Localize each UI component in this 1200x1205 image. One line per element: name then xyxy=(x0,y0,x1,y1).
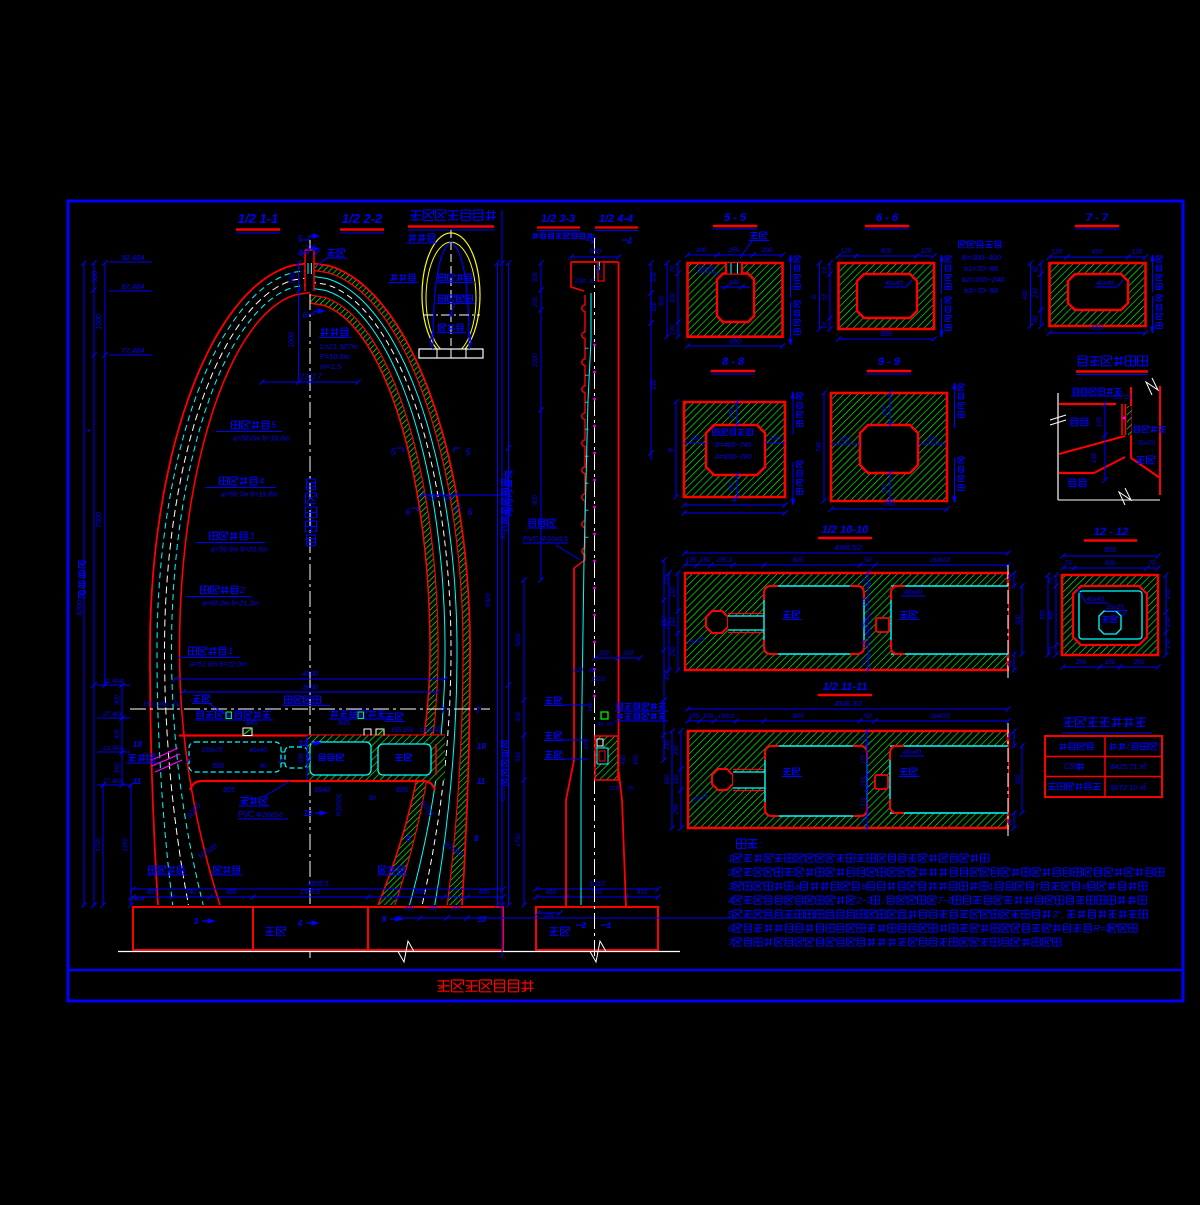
svg-text:100: 100 xyxy=(729,279,740,286)
svg-text:75: 75 xyxy=(1065,561,1072,567)
svg-text:175: 175 xyxy=(861,796,867,806)
svg-text:b3: b3 xyxy=(823,321,829,328)
svg-text:200: 200 xyxy=(883,483,889,495)
svg-text:b2: b2 xyxy=(823,293,829,300)
svg-text:PVC: PVC xyxy=(523,534,539,543)
svg-text:550: 550 xyxy=(634,754,640,765)
svg-text:a=60.3m b=21.2m: a=60.3m b=21.2m xyxy=(202,601,259,608)
svg-text:12 - 12: 12 - 12 xyxy=(1094,526,1128,538)
svg-text:400: 400 xyxy=(1023,289,1029,300)
svg-text:805: 805 xyxy=(223,787,235,794)
svg-text:500: 500 xyxy=(290,272,297,284)
svg-text:250: 250 xyxy=(671,586,677,598)
svg-text:150: 150 xyxy=(403,727,414,734)
svg-text:6: 6 xyxy=(405,507,410,517)
svg-text:175: 175 xyxy=(862,639,868,649)
svg-text:b3=70~80: b3=70~80 xyxy=(964,286,999,295)
svg-text:3600: 3600 xyxy=(302,685,318,692)
svg-text:10: 10 xyxy=(478,915,487,924)
svg-text:C50: C50 xyxy=(1064,762,1079,771)
svg-text:6100: 6100 xyxy=(504,517,511,532)
svg-text:4400: 4400 xyxy=(302,671,318,678)
svg-text:27.404: 27.404 xyxy=(102,711,123,718)
svg-text:150: 150 xyxy=(861,776,867,786)
svg-text:,: , xyxy=(881,895,884,905)
svg-text:150: 150 xyxy=(690,435,701,442)
svg-text:125: 125 xyxy=(609,786,619,792)
svg-text:77.404: 77.404 xyxy=(122,346,145,355)
svg-text:180: 180 xyxy=(588,701,594,711)
svg-text:7: 7 xyxy=(441,706,446,715)
svg-text:a=58.0m b=18.0m: a=58.0m b=18.0m xyxy=(233,436,290,443)
svg-text:10: 10 xyxy=(477,742,486,751)
svg-text:40x40: 40x40 xyxy=(885,280,903,287)
svg-text:200: 200 xyxy=(622,651,634,657)
svg-text:4346.3/2: 4346.3/2 xyxy=(834,701,861,708)
svg-text:9672.10 m: 9672.10 m xyxy=(1110,783,1145,792)
svg-text:250: 250 xyxy=(598,651,610,657)
svg-text:200: 200 xyxy=(403,906,415,912)
svg-text:4: 4 xyxy=(259,476,264,486)
svg-text:240: 240 xyxy=(157,701,169,708)
svg-text:250: 250 xyxy=(671,646,677,658)
svg-text:F=10.0m: F=10.0m xyxy=(320,352,350,361)
svg-text:3: 3 xyxy=(194,917,199,926)
svg-text:75: 75 xyxy=(1049,577,1055,584)
svg-text:2~3: 2~3 xyxy=(855,895,873,905)
svg-text:40x40: 40x40 xyxy=(249,747,267,754)
svg-text:A=650~790: A=650~790 xyxy=(714,454,751,461)
svg-text:130: 130 xyxy=(652,379,658,390)
svg-text:300: 300 xyxy=(652,301,658,312)
svg-text:135: 135 xyxy=(686,557,697,564)
svg-text:200: 200 xyxy=(543,913,555,919)
svg-text:200: 200 xyxy=(926,436,938,443)
svg-text:25: 25 xyxy=(1124,395,1132,401)
svg-text:150: 150 xyxy=(671,616,677,627)
svg-text:11: 11 xyxy=(133,777,142,786)
svg-text:790: 790 xyxy=(883,501,895,508)
svg-text::: : xyxy=(1003,240,1005,249)
svg-text:b: b xyxy=(861,881,866,891)
svg-text:500: 500 xyxy=(1016,774,1022,785)
svg-text:550: 550 xyxy=(516,751,522,762)
svg-text:805: 805 xyxy=(793,557,804,564)
svg-text:400: 400 xyxy=(115,728,121,739)
svg-text:250: 250 xyxy=(1166,588,1172,600)
svg-text:300: 300 xyxy=(671,292,677,303)
svg-text:75: 75 xyxy=(1008,733,1014,740)
svg-text:4: 4 xyxy=(297,919,303,928)
svg-text:120: 120 xyxy=(1052,249,1063,256)
svg-text:740: 740 xyxy=(817,441,823,452)
svg-text:11: 11 xyxy=(477,777,486,786)
svg-text:Φ16x0.5: Φ16x0.5 xyxy=(541,536,568,543)
svg-text:1350: 1350 xyxy=(123,838,129,852)
svg-text:250: 250 xyxy=(1075,659,1087,666)
svg-text:B=300~400: B=300~400 xyxy=(962,253,1002,262)
svg-text:60: 60 xyxy=(1034,265,1040,272)
svg-text:410: 410 xyxy=(546,889,557,896)
svg-text:7 - 7: 7 - 7 xyxy=(1086,212,1109,224)
svg-text:650: 650 xyxy=(662,616,668,627)
svg-text:50: 50 xyxy=(864,557,872,564)
svg-text:155: 155 xyxy=(143,701,154,708)
svg-text:150: 150 xyxy=(1166,638,1172,649)
svg-text:B=400~740: B=400~740 xyxy=(715,442,751,449)
svg-text:1610: 1610 xyxy=(589,881,605,888)
svg-text:1505.5: 1505.5 xyxy=(300,889,320,896)
svg-text:435: 435 xyxy=(415,889,426,896)
svg-text:75: 75 xyxy=(627,786,634,792)
svg-text:125: 125 xyxy=(584,739,590,749)
svg-text:B: B xyxy=(812,295,818,299)
svg-text:R30000: R30000 xyxy=(336,793,343,816)
svg-text:b1: b1 xyxy=(823,267,829,274)
svg-text:7~8: 7~8 xyxy=(938,895,955,905)
svg-text:340: 340 xyxy=(428,906,439,912)
svg-text:120x50: 120x50 xyxy=(419,727,441,734)
svg-text:150: 150 xyxy=(862,619,868,629)
svg-text:1640/2: 1640/2 xyxy=(930,713,950,720)
svg-text:435: 435 xyxy=(479,889,490,896)
svg-text:75: 75 xyxy=(861,735,867,742)
svg-text:175: 175 xyxy=(862,596,868,606)
svg-text:6: 6 xyxy=(467,507,472,517)
svg-text:40x40: 40x40 xyxy=(1096,280,1114,287)
svg-text::: : xyxy=(759,839,762,851)
svg-text:120: 120 xyxy=(921,248,932,255)
svg-text:150: 150 xyxy=(703,713,714,720)
svg-text:1/2 4-4: 1/2 4-4 xyxy=(599,213,633,225)
svg-text:155: 155 xyxy=(689,713,700,720)
svg-text:a=59.5m b=20.0m: a=59.5m b=20.0m xyxy=(211,547,268,554)
svg-text:650: 650 xyxy=(1091,325,1103,332)
svg-text:): ) xyxy=(1157,742,1161,751)
svg-text:1: 1 xyxy=(228,646,233,656)
svg-text:845: 845 xyxy=(338,720,350,727)
svg-text:1750: 1750 xyxy=(96,838,102,852)
svg-text:410: 410 xyxy=(1092,249,1103,256)
svg-text:4390.5/2: 4390.5/2 xyxy=(834,545,861,552)
svg-text:7: 7 xyxy=(476,706,481,715)
svg-text:550: 550 xyxy=(299,752,305,763)
svg-text:120: 120 xyxy=(1132,249,1143,256)
svg-text:193.2: 193.2 xyxy=(718,713,735,720)
svg-text:8 - 8: 8 - 8 xyxy=(722,356,745,368)
svg-text:150: 150 xyxy=(700,557,711,564)
svg-text:31.404: 31.404 xyxy=(103,678,123,685)
svg-text:480: 480 xyxy=(307,752,313,763)
svg-text:100: 100 xyxy=(1097,416,1103,427)
svg-text:650: 650 xyxy=(729,339,741,346)
svg-text:50: 50 xyxy=(173,701,181,708)
svg-text:17.404: 17.404 xyxy=(103,778,123,785)
svg-text:3°,: 3°, xyxy=(1052,909,1063,919)
svg-text:435: 435 xyxy=(147,889,158,896)
svg-text:90: 90 xyxy=(597,722,604,728)
svg-text:50: 50 xyxy=(864,713,872,720)
svg-text:500: 500 xyxy=(533,271,539,282)
svg-text:1: 1 xyxy=(628,236,633,245)
svg-text:65: 65 xyxy=(607,722,614,728)
svg-text:5920: 5920 xyxy=(485,592,492,607)
svg-text:650: 650 xyxy=(665,774,671,785)
svg-text:1000: 1000 xyxy=(96,314,103,330)
svg-text:240: 240 xyxy=(1034,287,1040,299)
svg-text:75: 75 xyxy=(1008,819,1014,826)
svg-text:410: 410 xyxy=(637,889,648,896)
svg-text:92.404: 92.404 xyxy=(122,253,145,262)
svg-text:8: 8 xyxy=(406,834,411,843)
svg-text:4.404: 4.404 xyxy=(128,896,145,903)
svg-text:120: 120 xyxy=(442,496,453,502)
svg-text:500: 500 xyxy=(1105,560,1116,567)
svg-text:250: 250 xyxy=(728,247,740,254)
svg-text:500: 500 xyxy=(660,295,666,306)
svg-text:2: 2 xyxy=(1143,783,1147,789)
svg-text:155: 155 xyxy=(391,727,402,734)
svg-text:40x40: 40x40 xyxy=(697,265,715,272)
svg-text:1/2 3-3: 1/2 3-3 xyxy=(541,213,575,225)
svg-text:70x70: 70x70 xyxy=(1137,440,1155,447)
svg-text:30: 30 xyxy=(368,795,376,802)
svg-text:9 - 9: 9 - 9 xyxy=(878,356,901,368)
svg-text:430: 430 xyxy=(621,754,627,765)
svg-text:250: 250 xyxy=(674,803,680,815)
svg-text:550: 550 xyxy=(115,762,121,773)
svg-text:150: 150 xyxy=(1166,616,1172,627)
svg-text:1750: 1750 xyxy=(516,833,522,847)
svg-text:150x75: 150x75 xyxy=(201,747,223,754)
svg-text:410: 410 xyxy=(881,248,892,255)
svg-text:138: 138 xyxy=(1092,452,1098,463)
svg-text:4: 4 xyxy=(297,248,302,258)
svg-text:75: 75 xyxy=(861,817,867,824)
svg-text:21.904: 21.904 xyxy=(102,745,123,752)
svg-text:500: 500 xyxy=(92,271,99,283)
svg-text:1000: 1000 xyxy=(533,353,539,367)
svg-text:400: 400 xyxy=(1049,609,1055,620)
svg-text:200: 200 xyxy=(695,247,707,254)
svg-text:7000: 7000 xyxy=(96,512,103,528)
svg-text:435: 435 xyxy=(226,889,237,896)
svg-text:75: 75 xyxy=(1049,646,1055,653)
svg-text:L: L xyxy=(990,881,995,891)
svg-text:150: 150 xyxy=(674,774,680,785)
svg-text:1/2 1-1: 1/2 1-1 xyxy=(238,211,278,226)
svg-text:400: 400 xyxy=(115,694,121,705)
svg-text:200: 200 xyxy=(450,906,462,912)
svg-text:150: 150 xyxy=(770,435,781,442)
svg-text:6: 6 xyxy=(302,310,307,320)
svg-text:10: 10 xyxy=(133,740,142,749)
svg-text:200: 200 xyxy=(761,247,773,254)
svg-text:200: 200 xyxy=(883,405,889,417)
svg-text:5000: 5000 xyxy=(516,633,522,647)
svg-text:1000: 1000 xyxy=(289,332,296,348)
svg-text:40x40: 40x40 xyxy=(1086,596,1104,603)
svg-text:87.404: 87.404 xyxy=(122,282,145,291)
svg-text:500: 500 xyxy=(212,763,224,770)
svg-text:200: 200 xyxy=(839,436,851,443)
svg-text:75: 75 xyxy=(862,659,868,666)
svg-text:650: 650 xyxy=(880,331,892,338)
svg-text:8425.71 m: 8425.71 m xyxy=(1110,762,1145,771)
svg-text:650: 650 xyxy=(589,249,601,256)
svg-text:120: 120 xyxy=(841,248,852,255)
svg-text:2: 2 xyxy=(239,585,245,595)
svg-text:500: 500 xyxy=(652,271,658,282)
svg-text:75: 75 xyxy=(862,577,868,584)
svg-text:a=51.0m b=22.0m: a=51.0m b=22.0m xyxy=(190,662,247,669)
svg-text:8: 8 xyxy=(474,834,479,843)
svg-text:150: 150 xyxy=(730,407,736,418)
svg-text:25: 25 xyxy=(588,279,596,285)
svg-text:b2=160~240: b2=160~240 xyxy=(962,275,1005,284)
svg-text:4: 4 xyxy=(728,895,733,905)
svg-text:6 - 6: 6 - 6 xyxy=(876,212,899,224)
svg-text:40: 40 xyxy=(589,668,596,674)
svg-text:40x40: 40x40 xyxy=(903,749,921,756)
svg-text:25x25: 25x25 xyxy=(1105,604,1124,611)
svg-text:500: 500 xyxy=(1016,614,1022,625)
svg-text:B: B xyxy=(669,448,675,452)
svg-text:200: 200 xyxy=(533,296,539,308)
svg-text:1/2 2-2: 1/2 2-2 xyxy=(342,211,383,226)
svg-text:200: 200 xyxy=(574,279,586,285)
svg-text:10: 10 xyxy=(1114,395,1121,401)
svg-text:805: 805 xyxy=(396,787,408,794)
svg-text:120: 120 xyxy=(573,668,584,674)
svg-text:12: 12 xyxy=(299,739,308,748)
svg-text:80: 80 xyxy=(1034,315,1040,322)
svg-text:650: 650 xyxy=(1104,547,1116,554)
svg-text:1: 1 xyxy=(728,853,733,863)
svg-text:75: 75 xyxy=(1008,574,1014,581)
svg-text:4835.5: 4835.5 xyxy=(307,881,329,888)
svg-text:400: 400 xyxy=(516,711,522,722)
svg-text:100: 100 xyxy=(596,264,602,274)
svg-text:70: 70 xyxy=(671,265,677,272)
svg-text:5 - 5: 5 - 5 xyxy=(724,212,747,224)
svg-text:75: 75 xyxy=(1149,561,1156,567)
svg-text:250: 250 xyxy=(1133,659,1145,666)
svg-text:40x40: 40x40 xyxy=(904,589,922,596)
svg-text:m=1.5: m=1.5 xyxy=(320,362,342,371)
svg-text:b1=70~80: b1=70~80 xyxy=(964,264,999,273)
svg-text:175: 175 xyxy=(861,754,867,764)
svg-text:740: 740 xyxy=(186,889,197,896)
svg-text:235.3: 235.3 xyxy=(715,557,733,564)
svg-text:90: 90 xyxy=(259,763,267,770)
svg-text:a=59.7m b=19.8m: a=59.7m b=19.8m xyxy=(221,492,278,499)
svg-text:1/2 10-10: 1/2 10-10 xyxy=(822,524,869,536)
svg-text:75: 75 xyxy=(1008,660,1014,667)
svg-text:790: 790 xyxy=(591,889,602,896)
svg-text:845: 845 xyxy=(246,720,258,727)
svg-text:Φ16x0.6: Φ16x0.6 xyxy=(256,812,283,819)
svg-text:1640: 1640 xyxy=(314,787,330,794)
svg-text:3: 3 xyxy=(249,531,254,541)
svg-text:12: 12 xyxy=(304,809,313,818)
svg-text:150: 150 xyxy=(730,481,736,492)
svg-text::: : xyxy=(755,428,757,437)
svg-text:2102.7: 2102.7 xyxy=(299,374,323,381)
svg-text:190/2: 190/2 xyxy=(590,677,606,683)
svg-text:550: 550 xyxy=(1041,609,1047,620)
svg-text:6100: 6100 xyxy=(500,786,507,801)
svg-text:A: A xyxy=(731,497,737,504)
svg-text:250: 250 xyxy=(674,744,680,756)
svg-text:120: 120 xyxy=(425,496,436,502)
svg-text:a: a xyxy=(795,881,800,891)
svg-text:250: 250 xyxy=(665,739,671,751)
svg-text:9: 9 xyxy=(382,915,387,924)
svg-text:500: 500 xyxy=(533,494,539,505)
svg-text:805: 805 xyxy=(793,713,804,720)
svg-text:1/2 11-11: 1/2 11-11 xyxy=(823,681,868,693)
svg-text:3: 3 xyxy=(1144,762,1147,768)
svg-text:1640/2: 1640/2 xyxy=(930,557,950,564)
svg-text:8200: 8200 xyxy=(77,600,84,616)
svg-text:L=21.927m: L=21.927m xyxy=(320,342,358,351)
svg-text:250: 250 xyxy=(665,574,671,586)
svg-text:130: 130 xyxy=(671,324,677,335)
svg-text:150: 150 xyxy=(1105,659,1116,666)
svg-text:PVC: PVC xyxy=(238,810,255,819)
